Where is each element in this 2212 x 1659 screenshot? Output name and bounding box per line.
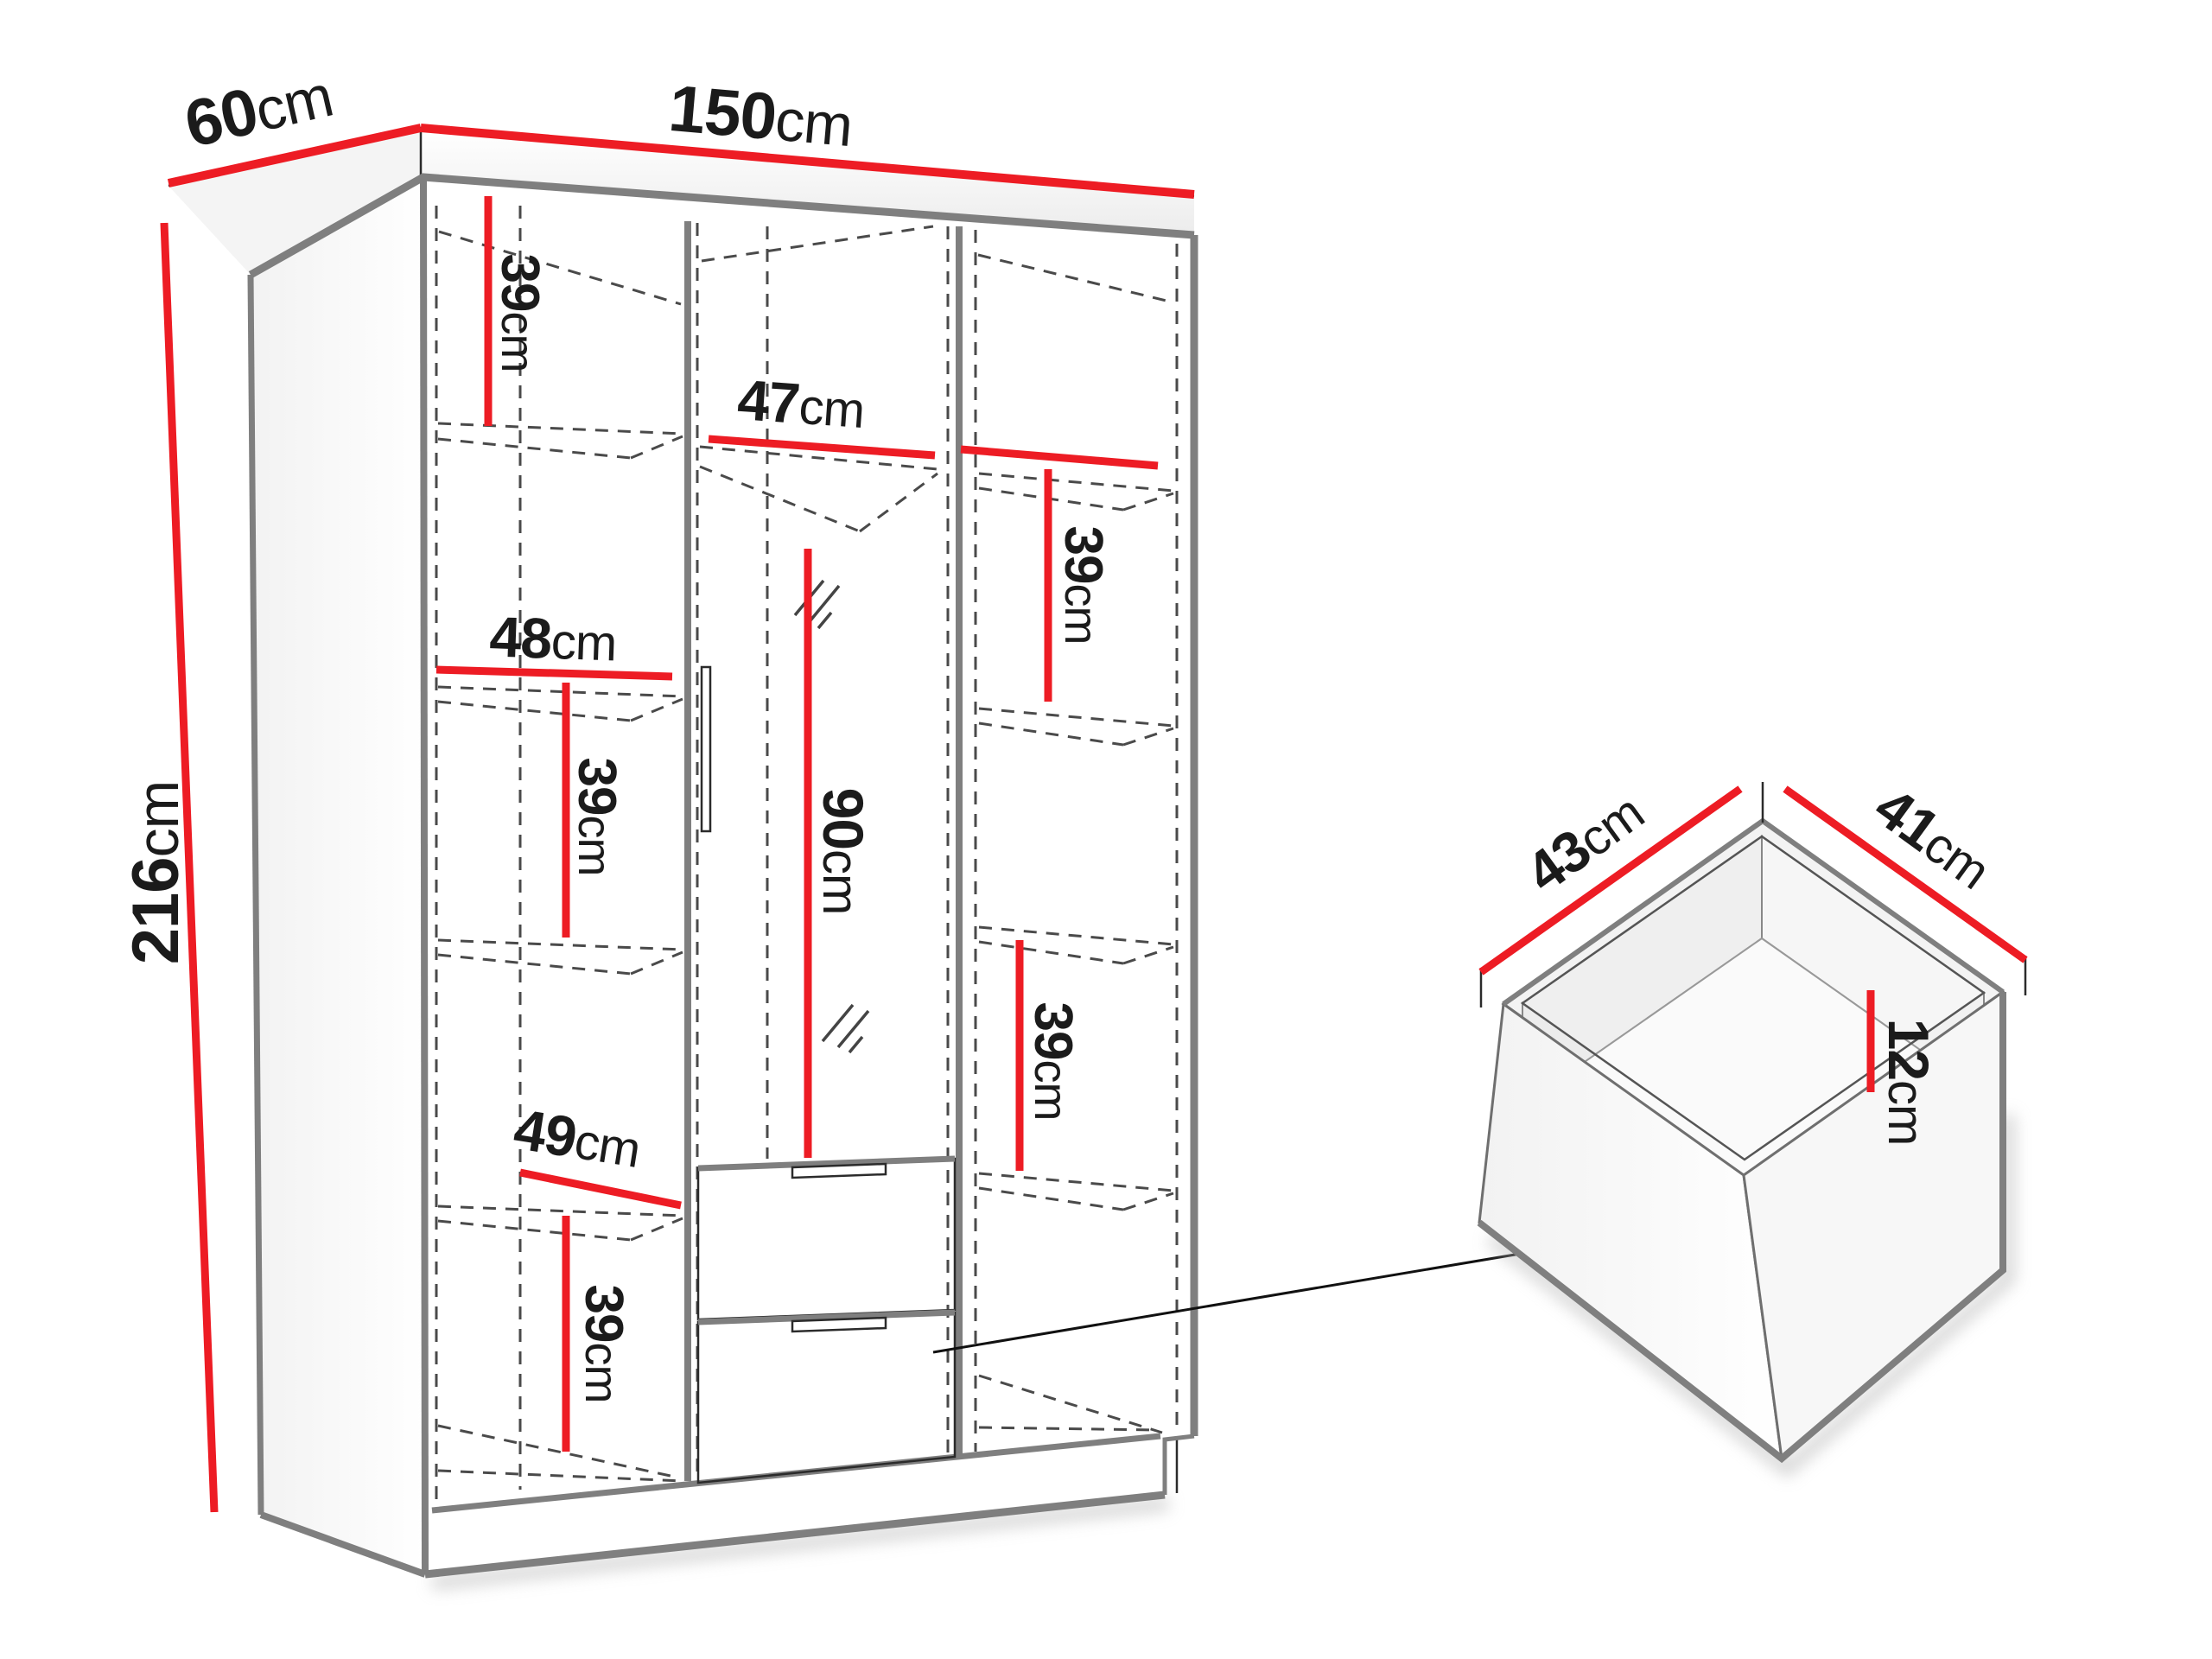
label-drawer-width: 43cm — [1514, 779, 1654, 905]
label-left-shelf-middle: 39cm — [567, 758, 626, 876]
drawer-detail-drawing: 43cm 41cm 12cm — [1479, 774, 2025, 1469]
label-left-shelf-top: 39cm — [490, 254, 550, 372]
diagram-canvas: 60cm 150cm 216cm 39cm 47cm 48cm 39cm 90c… — [0, 0, 2212, 1659]
label-depth: 60cm — [178, 57, 339, 162]
wardrobe-drawing: 60cm 150cm 216cm 39cm 47cm 48cm 39cm 90c… — [119, 57, 1201, 1583]
label-left-shelf-bottom: 39cm — [574, 1285, 633, 1403]
label-drawer-height: 12cm — [1877, 1019, 1941, 1146]
label-left-width-upper: 48cm — [488, 604, 617, 672]
left-side-panel-face — [251, 177, 425, 1574]
label-hanging-height: 90cm — [811, 788, 875, 915]
label-right-shelf-top: 39cm — [1053, 526, 1113, 645]
label-drawer-depth: 41cm — [1863, 774, 2003, 900]
wardrobe-dimensions-diagram: 60cm 150cm 216cm 39cm 47cm 48cm 39cm 90c… — [0, 0, 2212, 1659]
label-height: 216cm — [119, 781, 193, 964]
label-right-shelf-bottom: 39cm — [1023, 1002, 1083, 1121]
